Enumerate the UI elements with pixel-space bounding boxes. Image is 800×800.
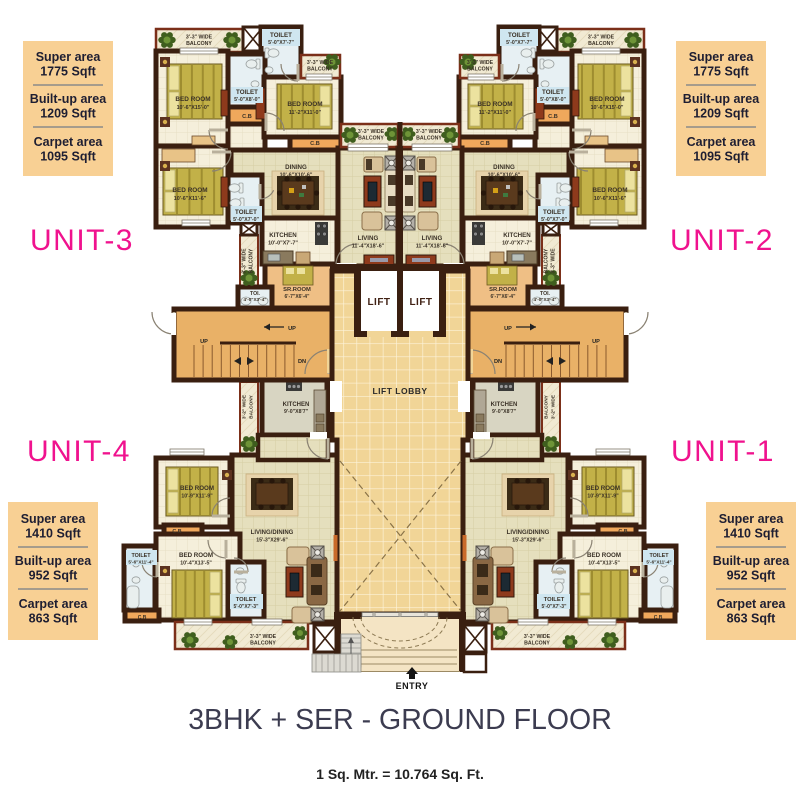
svg-text:Built-up area: Built-up area bbox=[713, 554, 790, 568]
svg-text:10'-4"X13'-5": 10'-4"X13'-5" bbox=[180, 561, 212, 567]
svg-text:11'-2"X11'-0": 11'-2"X11'-0" bbox=[289, 110, 322, 116]
svg-text:3'-3" WIDE: 3'-3" WIDE bbox=[467, 60, 494, 66]
svg-text:1095 Sqft: 1095 Sqft bbox=[40, 150, 96, 164]
svg-text:BED ROOM: BED ROOM bbox=[586, 485, 620, 492]
svg-text:BALCONY: BALCONY bbox=[467, 67, 493, 73]
svg-text:BALCONY: BALCONY bbox=[524, 641, 550, 647]
svg-text:TOILET: TOILET bbox=[544, 597, 565, 603]
svg-text:UP: UP bbox=[200, 339, 208, 345]
svg-text:DN: DN bbox=[494, 359, 502, 365]
svg-text:UNIT-3: UNIT-3 bbox=[30, 224, 134, 257]
svg-text:1775 Sqft: 1775 Sqft bbox=[40, 65, 96, 79]
svg-text:UP: UP bbox=[504, 326, 512, 332]
svg-text:SR.ROOM: SR.ROOM bbox=[489, 287, 517, 293]
svg-text:BED ROOM: BED ROOM bbox=[587, 552, 621, 559]
svg-text:5'-0"X7'-3": 5'-0"X7'-3" bbox=[542, 604, 568, 610]
svg-text:BED ROOM: BED ROOM bbox=[172, 187, 207, 194]
svg-text:ENTRY: ENTRY bbox=[396, 681, 429, 691]
svg-text:BALCONY: BALCONY bbox=[249, 394, 255, 419]
svg-text:LIFT LOBBY: LIFT LOBBY bbox=[372, 386, 427, 396]
svg-text:BALCONY: BALCONY bbox=[544, 394, 550, 419]
svg-text:3'-3" WIDE: 3'-3" WIDE bbox=[250, 634, 277, 640]
svg-text:11'-2"X11'-0": 11'-2"X11'-0" bbox=[479, 110, 512, 116]
svg-text:TOILET: TOILET bbox=[270, 32, 292, 39]
svg-text:3'-3" WIDE: 3'-3" WIDE bbox=[524, 634, 551, 640]
svg-text:1209 Sqft: 1209 Sqft bbox=[40, 107, 96, 121]
svg-text:UNIT-2: UNIT-2 bbox=[670, 224, 774, 257]
svg-text:10'-0"X7'-7": 10'-0"X7'-7" bbox=[268, 241, 298, 247]
svg-text:15'-3"X29'-6": 15'-3"X29'-6" bbox=[256, 538, 288, 544]
svg-text:TOILET: TOILET bbox=[543, 209, 565, 216]
svg-text:Super area: Super area bbox=[36, 50, 102, 64]
svg-text:5'-0"X7'-0": 5'-0"X7'-0" bbox=[541, 217, 567, 223]
svg-text:9'-0"X8'7": 9'-0"X8'7" bbox=[284, 409, 309, 415]
svg-text:C.B: C.B bbox=[242, 114, 252, 120]
svg-text:BALCONY: BALCONY bbox=[250, 641, 276, 647]
svg-text:1095 Sqft: 1095 Sqft bbox=[693, 150, 749, 164]
svg-text:TOILET: TOILET bbox=[236, 597, 257, 603]
svg-text:863 Sqft: 863 Sqft bbox=[29, 612, 78, 626]
svg-text:5'-0"X8'-0": 5'-0"X8'-0" bbox=[234, 97, 260, 103]
svg-text:3'-3" WIDE: 3'-3" WIDE bbox=[307, 60, 334, 66]
svg-text:10'-6"X11'-6": 10'-6"X11'-6" bbox=[174, 196, 207, 202]
svg-text:5'-6"X11'-4": 5'-6"X11'-4" bbox=[646, 560, 671, 565]
svg-text:KITCHEN: KITCHEN bbox=[269, 232, 297, 239]
svg-text:C.B: C.B bbox=[172, 529, 181, 535]
svg-text:5'-0"X7'-7": 5'-0"X7'-7" bbox=[268, 40, 294, 46]
svg-text:TOILET: TOILET bbox=[649, 553, 669, 559]
svg-text:C.B: C.B bbox=[480, 141, 490, 147]
svg-text:BED ROOM: BED ROOM bbox=[589, 96, 624, 103]
svg-text:DN: DN bbox=[298, 359, 306, 365]
svg-text:5'-0"X8'-0": 5'-0"X8'-0" bbox=[540, 97, 566, 103]
svg-text:BALCONY: BALCONY bbox=[416, 136, 442, 142]
svg-text:6'-7"X6'-4": 6'-7"X6'-4" bbox=[491, 294, 517, 300]
svg-text:C.B: C.B bbox=[310, 141, 320, 147]
svg-text:5'-0"X7'-0": 5'-0"X7'-0" bbox=[233, 217, 259, 223]
svg-text:10'-6"X10'-6": 10'-6"X10'-6" bbox=[280, 173, 313, 179]
svg-text:Super area: Super area bbox=[21, 512, 87, 526]
svg-text:3'-3" WIDE: 3'-3" WIDE bbox=[242, 248, 248, 274]
svg-text:Carpet area: Carpet area bbox=[687, 135, 757, 149]
svg-text:C.B: C.B bbox=[654, 615, 663, 621]
svg-text:C.B: C.B bbox=[618, 529, 627, 535]
svg-text:11'-4"X18'-6": 11'-4"X18'-6" bbox=[416, 244, 449, 250]
svg-text:1410 Sqft: 1410 Sqft bbox=[723, 527, 779, 541]
svg-text:TOILET: TOILET bbox=[131, 553, 151, 559]
svg-text:C.B: C.B bbox=[548, 114, 558, 120]
svg-text:KITCHEN: KITCHEN bbox=[491, 402, 518, 408]
svg-text:C.B: C.B bbox=[138, 615, 147, 621]
svg-text:BED ROOM: BED ROOM bbox=[287, 101, 322, 108]
svg-text:BALCONY: BALCONY bbox=[544, 248, 550, 273]
svg-text:3'-3" WIDE: 3'-3" WIDE bbox=[186, 35, 213, 41]
svg-text:10'-0"X7'-7": 10'-0"X7'-7" bbox=[502, 241, 532, 247]
svg-text:3'-2" WIDE: 3'-2" WIDE bbox=[551, 394, 557, 419]
svg-text:1209 Sqft: 1209 Sqft bbox=[693, 107, 749, 121]
svg-text:BED ROOM: BED ROOM bbox=[179, 552, 213, 559]
svg-text:UNIT-1: UNIT-1 bbox=[671, 435, 775, 468]
svg-text:BED ROOM: BED ROOM bbox=[180, 485, 214, 492]
svg-text:UP: UP bbox=[288, 326, 296, 332]
svg-text:Built-up area: Built-up area bbox=[15, 554, 92, 568]
svg-text:5'-6"X11'-4": 5'-6"X11'-4" bbox=[128, 560, 153, 565]
svg-text:10'-6"X15'-0": 10'-6"X15'-0" bbox=[177, 105, 210, 111]
svg-text:BALCONY: BALCONY bbox=[588, 41, 614, 47]
svg-text:BALCONY: BALCONY bbox=[186, 41, 212, 47]
svg-text:952 Sqft: 952 Sqft bbox=[29, 569, 78, 583]
svg-text:SR.ROOM: SR.ROOM bbox=[283, 287, 311, 293]
svg-text:DINING: DINING bbox=[285, 164, 307, 171]
svg-text:BALCONY: BALCONY bbox=[249, 248, 255, 273]
svg-text:LIVING: LIVING bbox=[358, 235, 379, 242]
svg-text:DINING: DINING bbox=[493, 164, 515, 171]
svg-text:BED ROOM: BED ROOM bbox=[592, 187, 627, 194]
svg-text:952 Sqft: 952 Sqft bbox=[727, 569, 776, 583]
svg-text:3BHK + SER - GROUND FLOOR: 3BHK + SER - GROUND FLOOR bbox=[188, 704, 612, 736]
svg-text:3'-3" WIDE: 3'-3" WIDE bbox=[358, 129, 385, 135]
svg-text:Built-up area: Built-up area bbox=[30, 92, 107, 106]
svg-text:5'-0"X7'-3": 5'-0"X7'-3" bbox=[234, 604, 260, 610]
svg-text:LIVING: LIVING bbox=[422, 235, 443, 242]
svg-text:KITCHEN: KITCHEN bbox=[503, 232, 531, 239]
svg-text:BALCONY: BALCONY bbox=[358, 136, 384, 142]
svg-text:TOILET: TOILET bbox=[542, 89, 564, 96]
svg-text:6'-7"X6'-4": 6'-7"X6'-4" bbox=[285, 294, 311, 300]
svg-text:Carpet area: Carpet area bbox=[19, 597, 89, 611]
svg-text:TOILET: TOILET bbox=[235, 209, 257, 216]
svg-text:5'-0"X7'-7": 5'-0"X7'-7" bbox=[506, 40, 532, 46]
svg-text:1775 Sqft: 1775 Sqft bbox=[693, 65, 749, 79]
svg-text:Carpet area: Carpet area bbox=[34, 135, 104, 149]
svg-text:Super area: Super area bbox=[719, 512, 785, 526]
svg-text:Carpet area: Carpet area bbox=[717, 597, 787, 611]
svg-text:LIVING/DINING: LIVING/DINING bbox=[507, 530, 550, 536]
svg-text:10'-9"X11'-9": 10'-9"X11'-9" bbox=[587, 494, 619, 500]
svg-text:3'-3" WIDE: 3'-3" WIDE bbox=[551, 248, 557, 274]
svg-text:863 Sqft: 863 Sqft bbox=[727, 612, 776, 626]
svg-text:10'-6"X11'-6": 10'-6"X11'-6" bbox=[594, 196, 627, 202]
svg-text:TOILET: TOILET bbox=[236, 89, 258, 96]
svg-text:4'-0"X3'-4": 4'-0"X3'-4" bbox=[244, 297, 267, 302]
svg-text:10'-6"X15'-0": 10'-6"X15'-0" bbox=[591, 105, 624, 111]
svg-text:UNIT-4: UNIT-4 bbox=[27, 435, 131, 468]
svg-text:1 Sq. Mtr. = 10.764 Sq. Ft.: 1 Sq. Mtr. = 10.764 Sq. Ft. bbox=[316, 766, 484, 782]
svg-text:3'-2" WIDE: 3'-2" WIDE bbox=[242, 394, 248, 419]
svg-text:10'-9"X11'-9": 10'-9"X11'-9" bbox=[181, 494, 213, 500]
svg-text:3'-3" WIDE: 3'-3" WIDE bbox=[588, 35, 615, 41]
svg-text:LIFT: LIFT bbox=[367, 297, 390, 308]
svg-text:11'-4"X18'-6": 11'-4"X18'-6" bbox=[352, 244, 385, 250]
svg-text:Built-up area: Built-up area bbox=[683, 92, 760, 106]
svg-text:10'-6"X10'-6": 10'-6"X10'-6" bbox=[488, 173, 521, 179]
svg-text:15'-3"X29'-6": 15'-3"X29'-6" bbox=[512, 538, 544, 544]
svg-text:KITCHEN: KITCHEN bbox=[283, 402, 310, 408]
svg-text:LIFT: LIFT bbox=[409, 297, 432, 308]
svg-text:BED ROOM: BED ROOM bbox=[175, 96, 210, 103]
svg-text:10'-4"X13'-5": 10'-4"X13'-5" bbox=[588, 561, 620, 567]
svg-text:BALCONY: BALCONY bbox=[307, 67, 333, 73]
svg-text:Super area: Super area bbox=[689, 50, 755, 64]
svg-text:4'-0"X3'-4": 4'-0"X3'-4" bbox=[534, 297, 557, 302]
svg-text:BED ROOM: BED ROOM bbox=[477, 101, 512, 108]
svg-text:LIVING/DINING: LIVING/DINING bbox=[251, 530, 294, 536]
svg-text:TOILET: TOILET bbox=[508, 32, 530, 39]
svg-text:UP: UP bbox=[592, 339, 600, 345]
svg-text:1410 Sqft: 1410 Sqft bbox=[25, 527, 81, 541]
svg-text:9'-0"X8'7": 9'-0"X8'7" bbox=[492, 409, 517, 415]
svg-text:3'-3" WIDE: 3'-3" WIDE bbox=[416, 129, 443, 135]
